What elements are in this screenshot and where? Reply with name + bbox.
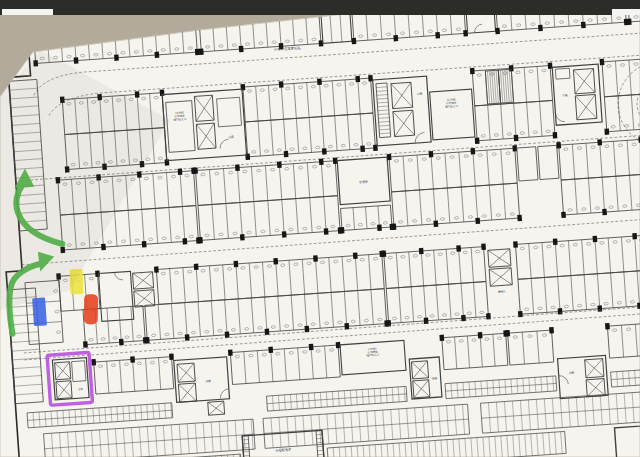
svg-text:C棟: C棟: [417, 92, 422, 96]
blue-highlight-marker: [32, 297, 47, 326]
red-highlight-marker: [84, 294, 99, 324]
svg-text:F棟: F棟: [563, 93, 568, 97]
screenshot-root: 小客車充電車位區(A,B棟)住宅車道閘門出入口G棟C棟(C,D棟)住宅車道閘門出…: [0, 0, 640, 457]
svg-text:D棟: D棟: [206, 379, 211, 383]
svg-text:管理室: 管理室: [359, 180, 368, 185]
top-right-white-tab: [612, 9, 640, 15]
top-chrome-bar: [0, 0, 640, 15]
top-left-white-tab: [2, 9, 53, 15]
svg-text:E棟: E棟: [78, 387, 83, 391]
svg-text:機車位: 機車位: [498, 289, 506, 294]
svg-text:B棟: B棟: [432, 376, 437, 380]
parking-floorplan-photo: 小客車充電車位區(A,B棟)住宅車道閘門出入口G棟C棟(C,D棟)住宅車道閘門出…: [0, 0, 640, 457]
svg-text:A棟: A棟: [569, 371, 574, 375]
svg-text:G棟: G棟: [228, 135, 234, 139]
